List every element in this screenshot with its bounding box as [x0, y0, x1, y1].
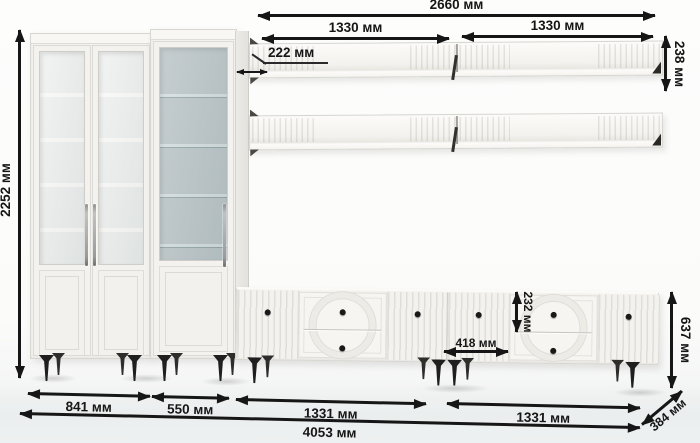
- dim-label: 637 мм: [678, 317, 693, 363]
- dim-shelf-right-width: 1330 мм: [462, 35, 653, 38]
- tv-stand-right-unit: [447, 292, 658, 365]
- door-knob: [415, 311, 421, 317]
- drawer-knob: [339, 345, 345, 351]
- furniture-leg: [625, 362, 640, 388]
- tv-stand: [235, 287, 657, 394]
- door-knob: [626, 314, 632, 320]
- tv-door: [236, 290, 299, 359]
- door-bottom-panel: [39, 270, 85, 356]
- furniture-leg: [431, 359, 446, 385]
- door-knob: [476, 312, 482, 318]
- shelf-rib-texture: [252, 118, 314, 142]
- bookcase-body: [30, 33, 151, 359]
- dim-label: 238 мм: [672, 40, 687, 86]
- wall-shelf-bottom: [249, 113, 663, 151]
- shelf-rib-texture: [410, 117, 510, 142]
- tv-stand-left-unit: [236, 289, 447, 362]
- dim-drawer-section-offset: 418 мм: [444, 350, 508, 353]
- dim-shelf-depth-label: 222 мм: [268, 45, 314, 60]
- shelf-rib-texture: [410, 45, 510, 70]
- display-cabinet: [150, 29, 248, 385]
- drawer-knob: [550, 348, 556, 354]
- dim-label: 4053 мм: [303, 424, 357, 440]
- dim-label: 1330 мм: [531, 18, 585, 33]
- bookcase: [30, 33, 151, 383]
- glass-pane-display: [159, 47, 228, 261]
- dim-label: 418 мм: [455, 336, 496, 350]
- shelf-bracket: [250, 77, 259, 84]
- dim-shelf-left-width: 1330 мм: [262, 37, 449, 40]
- shelf-rib-texture: [598, 44, 660, 68]
- shelf-bracket: [250, 109, 259, 116]
- dim-label: 2252 мм: [0, 163, 13, 217]
- leader-line: [263, 62, 328, 64]
- dim-label: 232 мм: [521, 291, 535, 332]
- display-cabinet-body: [150, 29, 237, 359]
- bookcase-cornice: [31, 34, 150, 44]
- dim-tv-stand-height: 637 мм: [670, 292, 673, 388]
- shelf-rib-texture: [598, 116, 660, 140]
- glass-pane: [98, 51, 144, 265]
- display-cabinet-cornice: [151, 30, 236, 40]
- drawer-knob: [340, 309, 346, 315]
- shelf-bracket: [250, 149, 259, 156]
- display-cabinet-door: [153, 41, 234, 356]
- dim-top-drawer-height: 232 мм: [515, 292, 518, 332]
- door-handle: [223, 204, 226, 267]
- tv-door: [597, 294, 660, 363]
- shelf-bracket: [250, 37, 259, 44]
- dim-label: 2660 мм: [430, 0, 484, 12]
- glass-pane: [39, 51, 85, 265]
- door-bottom-panel: [98, 270, 144, 356]
- furniture-leg: [447, 360, 462, 386]
- dim-label: 1330 мм: [329, 20, 383, 35]
- dim-shelf-depth-arrow: [237, 71, 267, 73]
- furniture-leg: [247, 357, 262, 383]
- furniture-dimension-diagram: 2660 мм 1330 мм 1330 мм 238 мм 222 мм 22…: [0, 0, 700, 443]
- door-knob: [265, 309, 271, 315]
- dim-total-height: 2252 мм: [18, 30, 21, 378]
- drawer-knob: [551, 312, 557, 318]
- door-handle: [93, 204, 96, 266]
- bookcase-door-right: [92, 45, 150, 356]
- door-bottom-panel: [159, 266, 228, 352]
- dim-shelves-total-width: 2660 мм: [258, 14, 655, 17]
- dim-shelf-height: 238 мм: [664, 36, 667, 91]
- door-handle: [85, 204, 88, 266]
- tv-drawer-panel: [298, 292, 387, 359]
- bookcase-door-left: [33, 45, 91, 356]
- tv-door: [386, 292, 449, 361]
